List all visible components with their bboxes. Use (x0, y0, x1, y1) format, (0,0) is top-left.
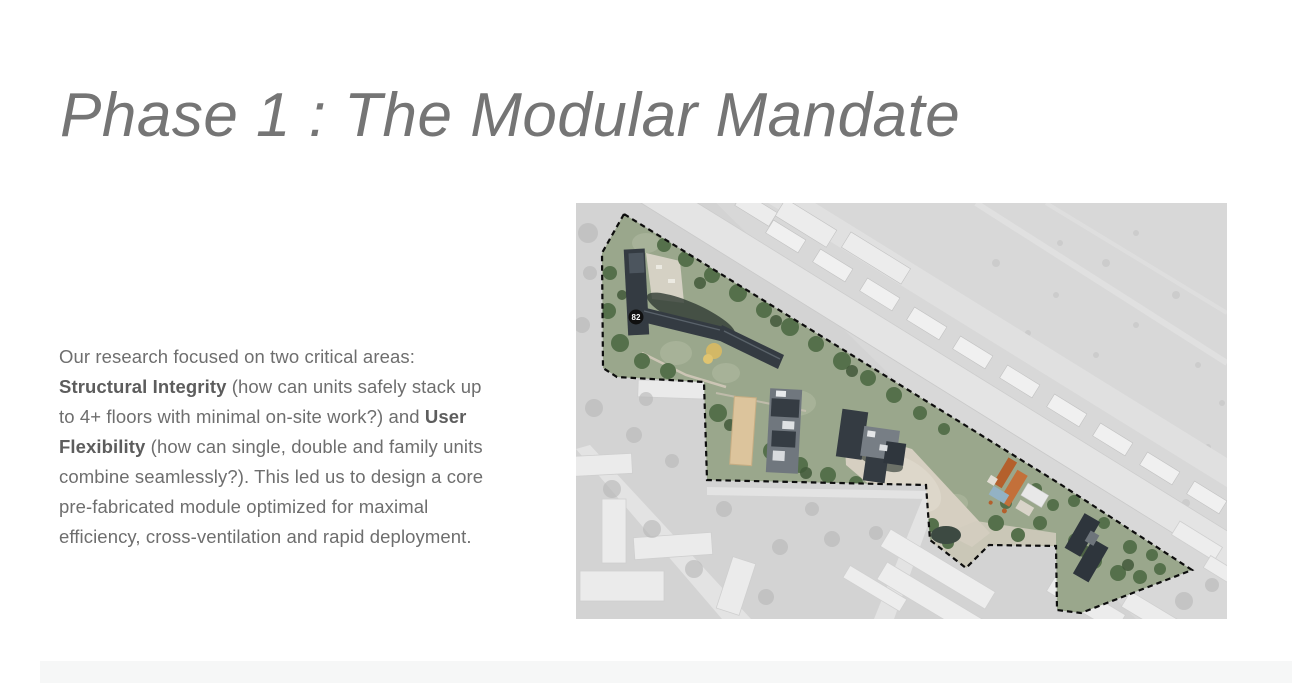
map-marker-label: 82 (632, 313, 641, 322)
sports-court (730, 396, 757, 465)
paragraph-text: Our research focused on two critical are… (59, 346, 415, 367)
next-section-divider (40, 661, 1292, 683)
map-marker: 82 (629, 310, 644, 325)
site-aerial-map-svg: 82 (576, 203, 1227, 619)
intro-paragraph: Our research focused on two critical are… (59, 342, 491, 552)
site-aerial-map: 82 (576, 203, 1227, 619)
keyword-structural-integrity: Structural Integrity (59, 376, 227, 397)
page-title: Phase 1 : The Modular Mandate (60, 80, 960, 151)
